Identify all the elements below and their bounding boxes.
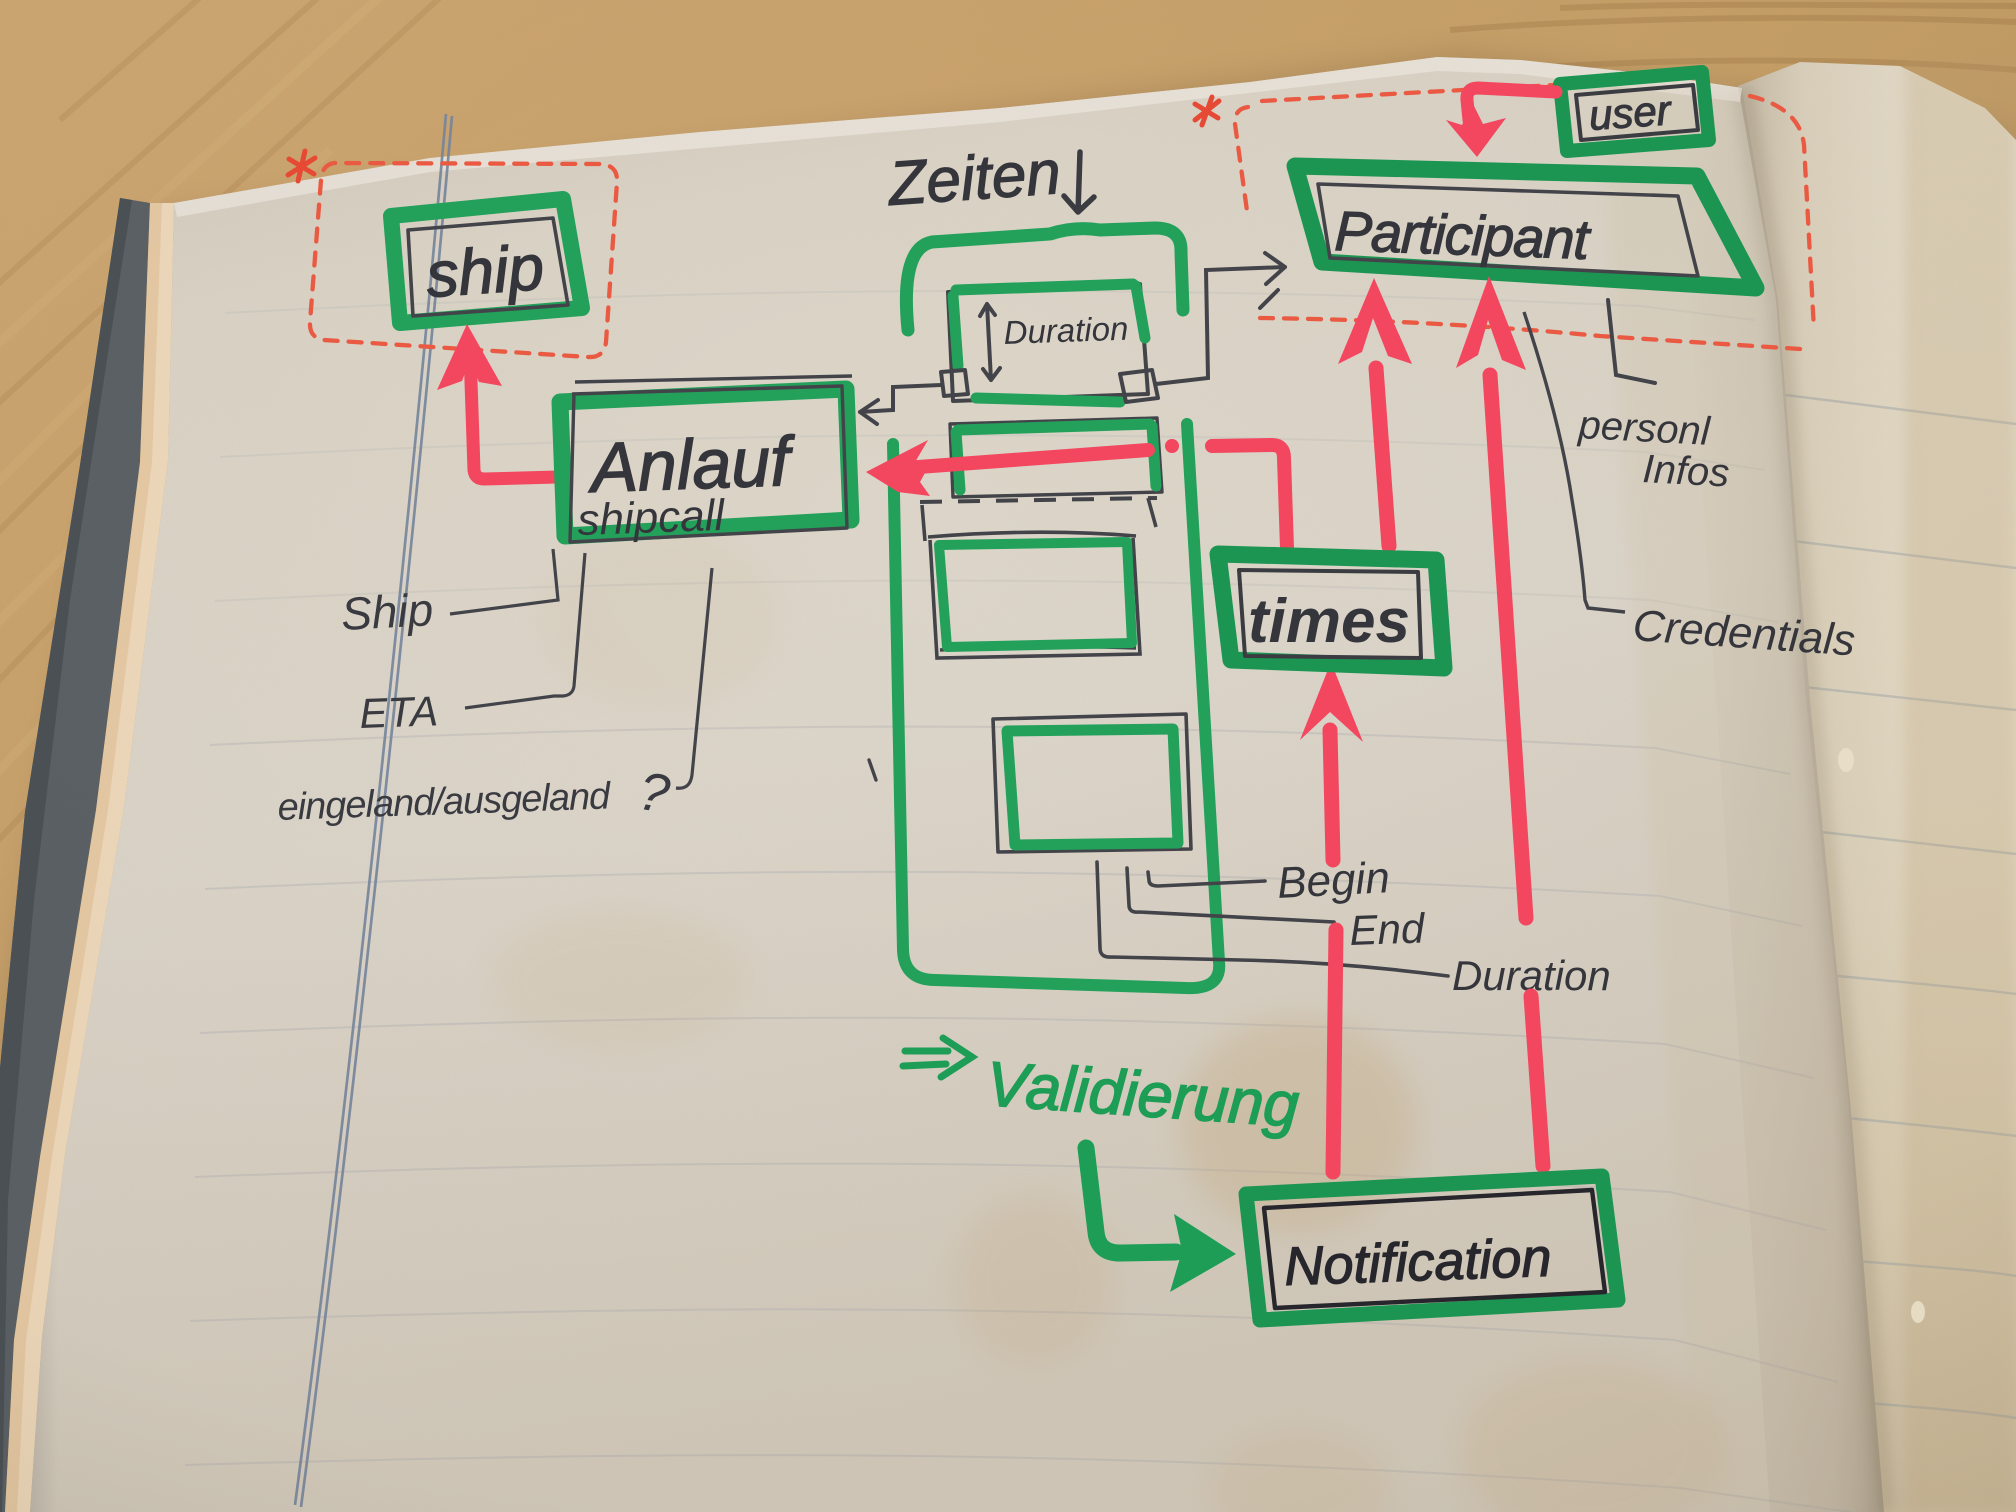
svg-text:Participant: Participant bbox=[1334, 199, 1593, 271]
svg-text:Zeiten: Zeiten bbox=[884, 138, 1063, 219]
svg-text:ship: ship bbox=[424, 231, 546, 311]
svg-text:Duration: Duration bbox=[1003, 310, 1129, 351]
svg-text:ETA: ETA bbox=[359, 687, 439, 737]
svg-text:Infos: Infos bbox=[1642, 447, 1731, 495]
svg-text:user: user bbox=[1587, 86, 1674, 139]
svg-text:Notification: Notification bbox=[1283, 1228, 1552, 1297]
svg-text:shipcall: shipcall bbox=[577, 491, 727, 545]
svg-text:End: End bbox=[1349, 904, 1427, 954]
svg-text:times: times bbox=[1248, 587, 1410, 656]
svg-text:Ship: Ship bbox=[340, 583, 435, 640]
